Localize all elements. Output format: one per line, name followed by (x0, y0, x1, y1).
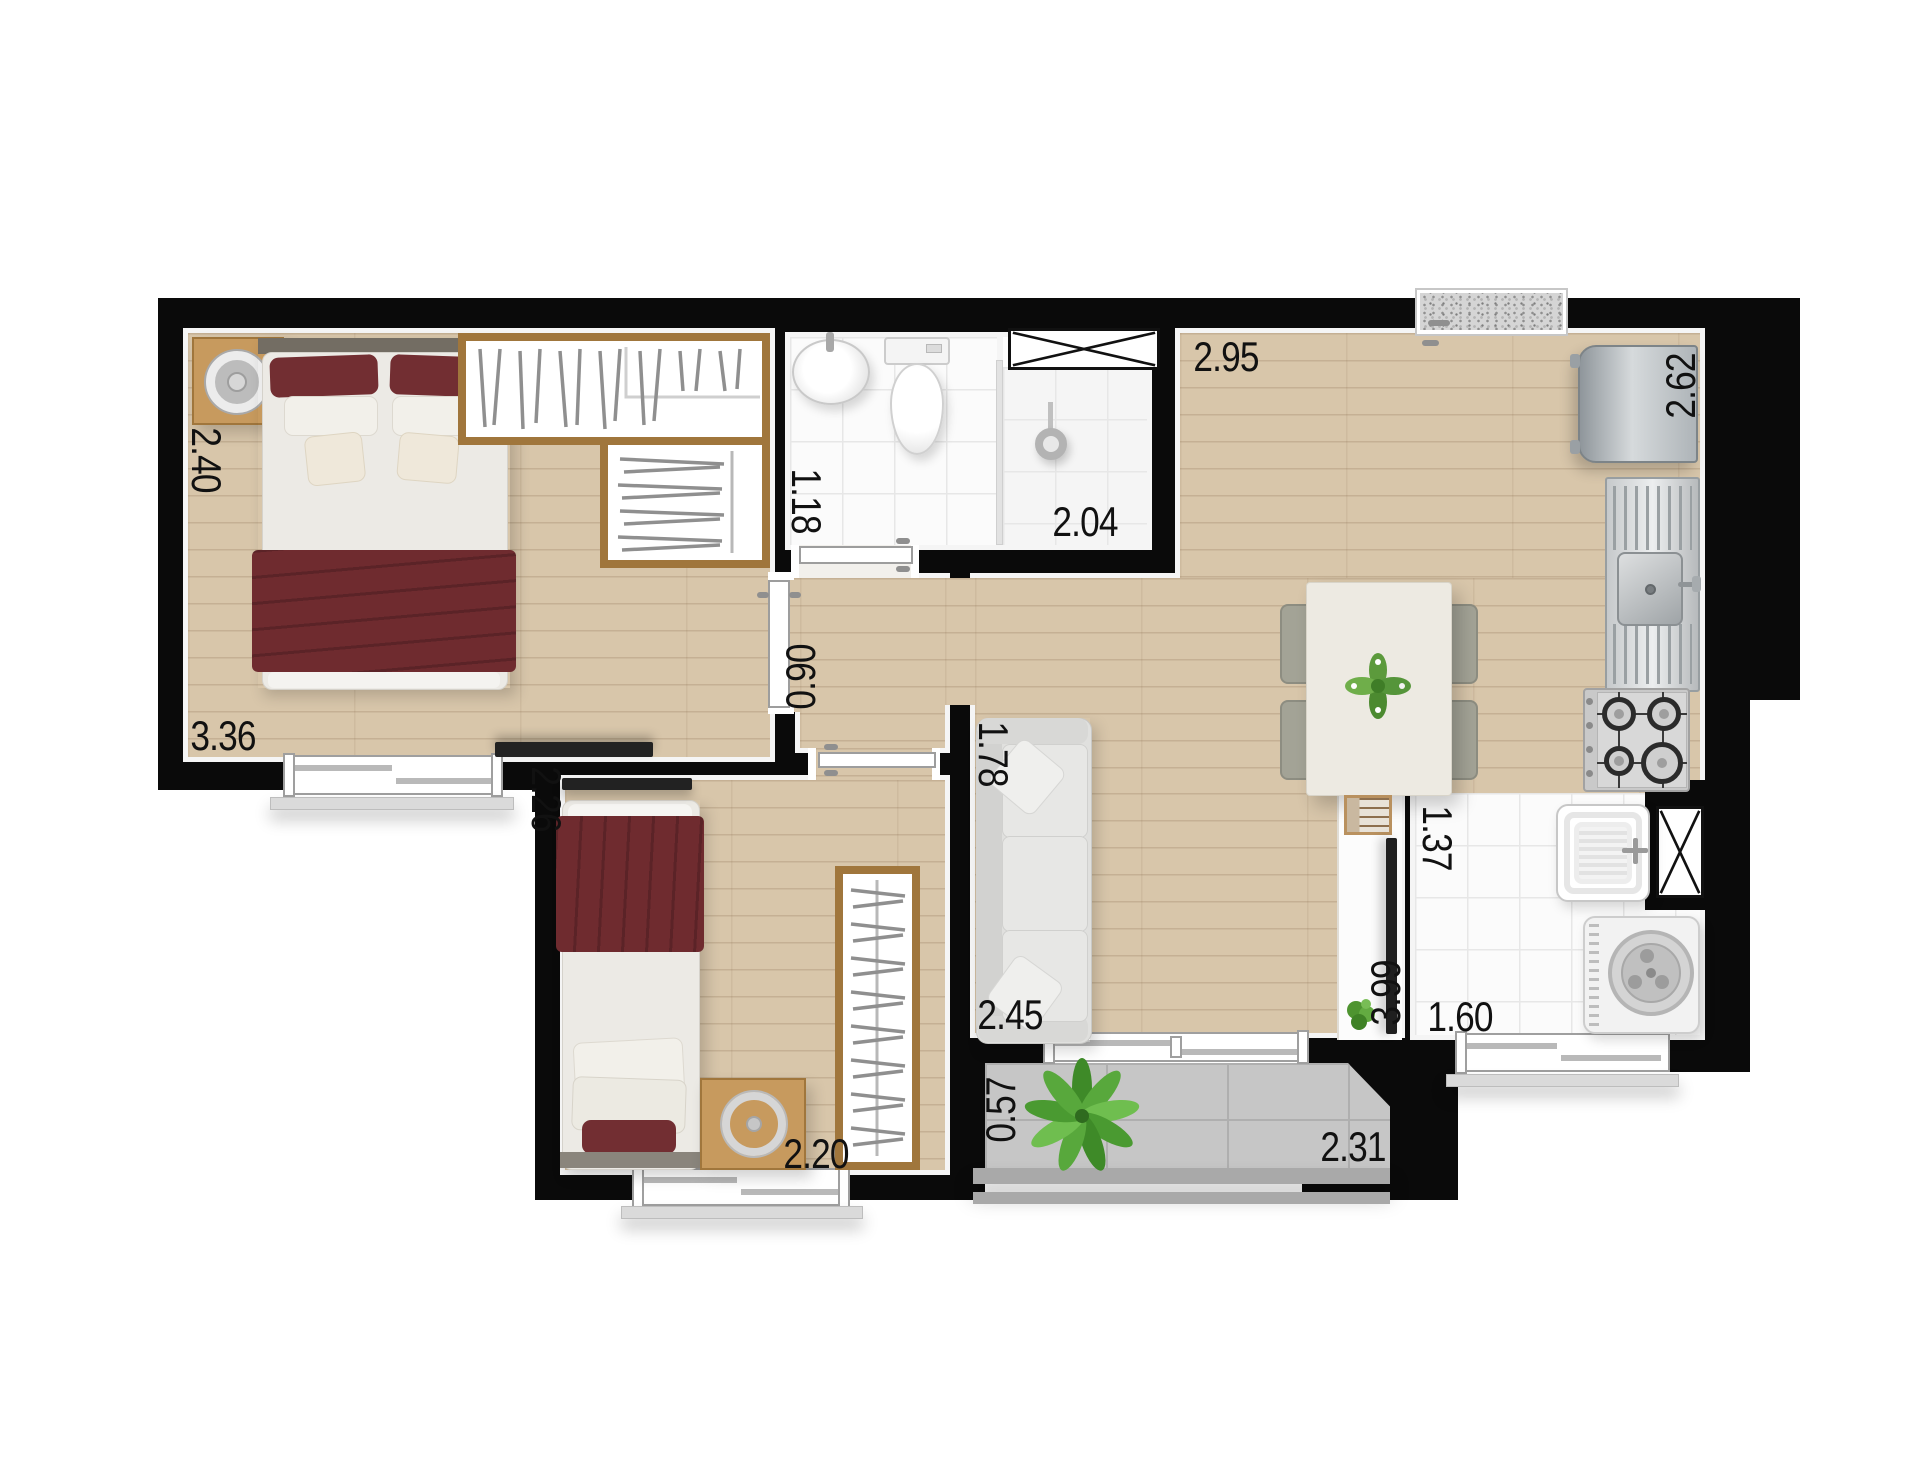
dim-balcony-depth: 0.57 (977, 1077, 1025, 1142)
sofa-cushion (1002, 836, 1088, 932)
drainboard-ribs (1613, 486, 1692, 550)
dim-master-depth: 2.40 (182, 427, 230, 492)
bedroom2-door-leaf (818, 752, 936, 768)
dim-balcony-width: 2.31 (1320, 1123, 1385, 1171)
master-wardrobe-top (458, 333, 770, 445)
wardrobe-hangers-icon (608, 445, 762, 560)
wall-laundry-bottom-right (1668, 1035, 1750, 1072)
washer-agitator-center (1646, 968, 1656, 978)
balcony-palm-plant-icon (1022, 1056, 1142, 1172)
dim-bath-width: 1.18 (782, 468, 830, 533)
desk-decor-center (746, 1116, 762, 1132)
dim-living-top-width: 2.95 (1193, 333, 1258, 381)
wall-right-upper (1700, 298, 1800, 700)
stove-burner-icon (1604, 746, 1634, 776)
washer-control-strip (1589, 924, 1599, 1026)
bedroom2-tv-icon (562, 778, 692, 790)
bed-blanket (252, 550, 516, 672)
stove-knob (1586, 698, 1593, 705)
pillow (284, 396, 378, 436)
master-window-sill (270, 797, 514, 810)
bed-foot-sheet (268, 672, 500, 688)
dim-living-length: 3.99 (1362, 960, 1410, 1025)
washer-agitator (1655, 975, 1669, 989)
refrigerator-hinge (1570, 354, 1580, 368)
dim-sofa-wall-length: 1.78 (969, 721, 1017, 786)
window-jamb (283, 753, 295, 797)
pillow (269, 354, 378, 398)
floor-plan: 2.40 3.36 1.18 2.04 0.90 2.95 2.62 2.26 … (0, 0, 1920, 1466)
pillow-accent (582, 1120, 676, 1154)
door-jamb (791, 545, 799, 578)
dim-living-bottom-width: 2.45 (977, 991, 1042, 1039)
master-tv-icon (495, 742, 653, 757)
bedroom2-window-sill (621, 1206, 863, 1219)
wardrobe-hangers-icon (466, 341, 762, 437)
drainboard-ribs (1613, 624, 1692, 684)
door-handle-icon (789, 592, 801, 598)
balcony-door-pane (1178, 1049, 1298, 1055)
stove-burner-icon (1602, 697, 1636, 731)
bathroom-faucet-icon (826, 332, 834, 352)
sink-drain (1645, 584, 1656, 595)
entry-door-handle-icon (1422, 340, 1439, 346)
tank-faucet-icon (1633, 838, 1638, 864)
dim-bath-total-width: 2.04 (1052, 498, 1117, 546)
bedroom2-window-sash (641, 1177, 737, 1183)
dim-master-width: 3.36 (190, 712, 255, 760)
dim-bedroom2-depth: 2.26 (522, 766, 570, 831)
laundry-window-sash (1561, 1055, 1661, 1061)
dim-bedroom2-width: 2.20 (783, 1130, 848, 1178)
refrigerator-hinge (1570, 440, 1580, 454)
master-window-frame (283, 755, 503, 795)
stove-knob (1586, 770, 1593, 777)
shower-head-icon (1035, 428, 1067, 460)
wardrobe-hangers-icon (843, 874, 912, 1162)
bed-headboard (560, 1152, 700, 1168)
door-handle-icon (757, 592, 769, 598)
table-centerpiece-plant-icon (1342, 650, 1414, 722)
laundry-window-sill (1446, 1074, 1679, 1087)
window-jamb (632, 1166, 644, 1208)
master-wardrobe-side (600, 437, 770, 568)
tank-ridges-inner (1574, 822, 1632, 884)
stove-knob (1586, 746, 1593, 753)
door-handle-icon (896, 538, 910, 544)
laundry-shaft-x-icon (1656, 806, 1704, 898)
dim-hall-width: 0.90 (777, 644, 825, 709)
washer-agitator (1628, 975, 1642, 989)
window-jamb (491, 753, 503, 797)
shower-partition (996, 360, 1003, 545)
bathroom-shaft-x-icon (1008, 328, 1160, 370)
master-window-sash (292, 765, 392, 771)
cushion (304, 431, 367, 487)
bedroom2-wardrobe (835, 866, 920, 1170)
stove-knob (1586, 722, 1593, 729)
stove-burner-icon (1647, 697, 1681, 731)
entry-door-handle-icon (1428, 320, 1450, 326)
stove-burner-icon (1641, 742, 1683, 784)
laundry-window-sash (1463, 1043, 1557, 1049)
washer-agitator (1640, 949, 1654, 963)
bathroom-door-leaf (799, 546, 913, 564)
bedroom2-window-sash (741, 1189, 841, 1195)
door-jamb (808, 748, 816, 780)
dim-laundry-width: 1.60 (1427, 993, 1492, 1041)
niche-art-frame (1344, 795, 1392, 835)
kitchen-faucet-base (1692, 576, 1701, 592)
master-window-sash (396, 778, 494, 784)
door-handle-icon (896, 566, 910, 572)
single-bed (560, 800, 700, 1168)
bed-blanket (556, 816, 704, 952)
floor-corridor-connector (945, 578, 975, 705)
dim-kitchen-wall-length: 2.62 (1657, 353, 1705, 418)
balcony-railing (973, 1192, 1390, 1204)
balcony-door-clasp (1170, 1036, 1182, 1058)
toilet-flush-button (926, 344, 942, 353)
door-handle-icon (824, 744, 838, 750)
door-jamb (1297, 1030, 1309, 1064)
dim-laundry-depth: 1.37 (1413, 805, 1461, 870)
table-lamp-center (227, 372, 247, 392)
cushion (396, 431, 460, 484)
door-handle-icon (824, 770, 838, 776)
